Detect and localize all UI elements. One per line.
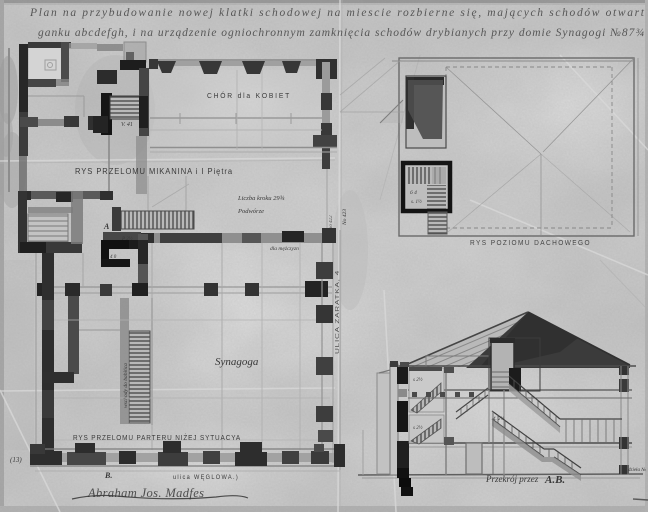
svg-text:Abraham Jos. Madfes: Abraham Jos. Madfes [87,486,204,500]
svg-text:dzieła №: dzieła № [628,467,646,473]
svg-text:ganku abcdefgh, i na urządzeni: ganku abcdefgh, i na urządzenie ogniochr… [38,27,644,39]
svg-text:wschody do babińca: wschody do babińca [123,363,129,408]
svg-text:Liczba kroku 29¾: Liczba kroku 29¾ [237,195,285,202]
svg-text:dla mężczyzn: dla mężczyzn [270,246,299,252]
svg-text:RYS POZIOMU DACHOWEGO: RYS POZIOMU DACHOWEGO [470,240,591,247]
svg-text:B.: B. [104,471,112,480]
svg-text:ulica WĘGLOWA.): ulica WĘGLOWA.) [173,474,239,481]
svg-text:Przekrój przez: Przekrój przez [485,474,539,484]
svg-text:P 2½: P 2½ [121,237,133,242]
svg-text:4. 2½: 4. 2½ [493,417,505,422]
svg-text:Plan na przybudowanie nowej kl: Plan na przybudowanie nowej klatki schod… [29,7,645,19]
svg-text:No 423: No 423 [341,209,348,226]
svg-text:Synagoga: Synagoga [215,356,259,368]
svg-text:V. 41: V. 41 [121,121,133,128]
svg-text:s. 1½: s. 1½ [411,200,422,205]
svg-text:ULICA ZARATKA, 4: ULICA ZARATKA, 4 [335,270,341,354]
svg-text:s 2½: s 2½ [413,426,423,431]
svg-text:(13): (13) [10,456,22,464]
svg-text:s 2½: s 2½ [413,378,423,383]
svg-text:6 4: 6 4 [410,189,417,196]
svg-text:A.B.: A.B. [544,474,565,486]
svg-text:CHÓR dla KOBIET: CHÓR dla KOBIET [207,91,291,100]
svg-text:4 0: 4 0 [110,255,117,260]
svg-text:A: A [103,222,110,231]
svg-text:Podwórze: Podwórze [237,208,264,215]
svg-text:RYS PRZELOMU MIKANINA i I Pięt: RYS PRZELOMU MIKANINA i I Piętra [75,167,233,176]
svg-text:RYS PRZELOMU PARTERU NIŻEJ SYT: RYS PRZELOMU PARTERU NIŻEJ SYTUACYA [73,433,241,442]
